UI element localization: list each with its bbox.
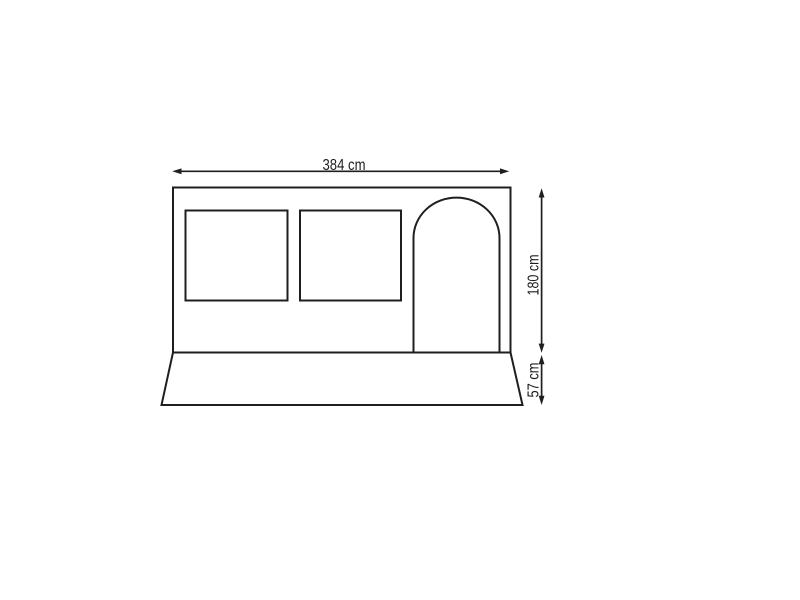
- svg-text:57 cm: 57 cm: [526, 363, 543, 398]
- svg-text:384 cm: 384 cm: [323, 157, 366, 174]
- svg-text:180 cm: 180 cm: [526, 255, 543, 296]
